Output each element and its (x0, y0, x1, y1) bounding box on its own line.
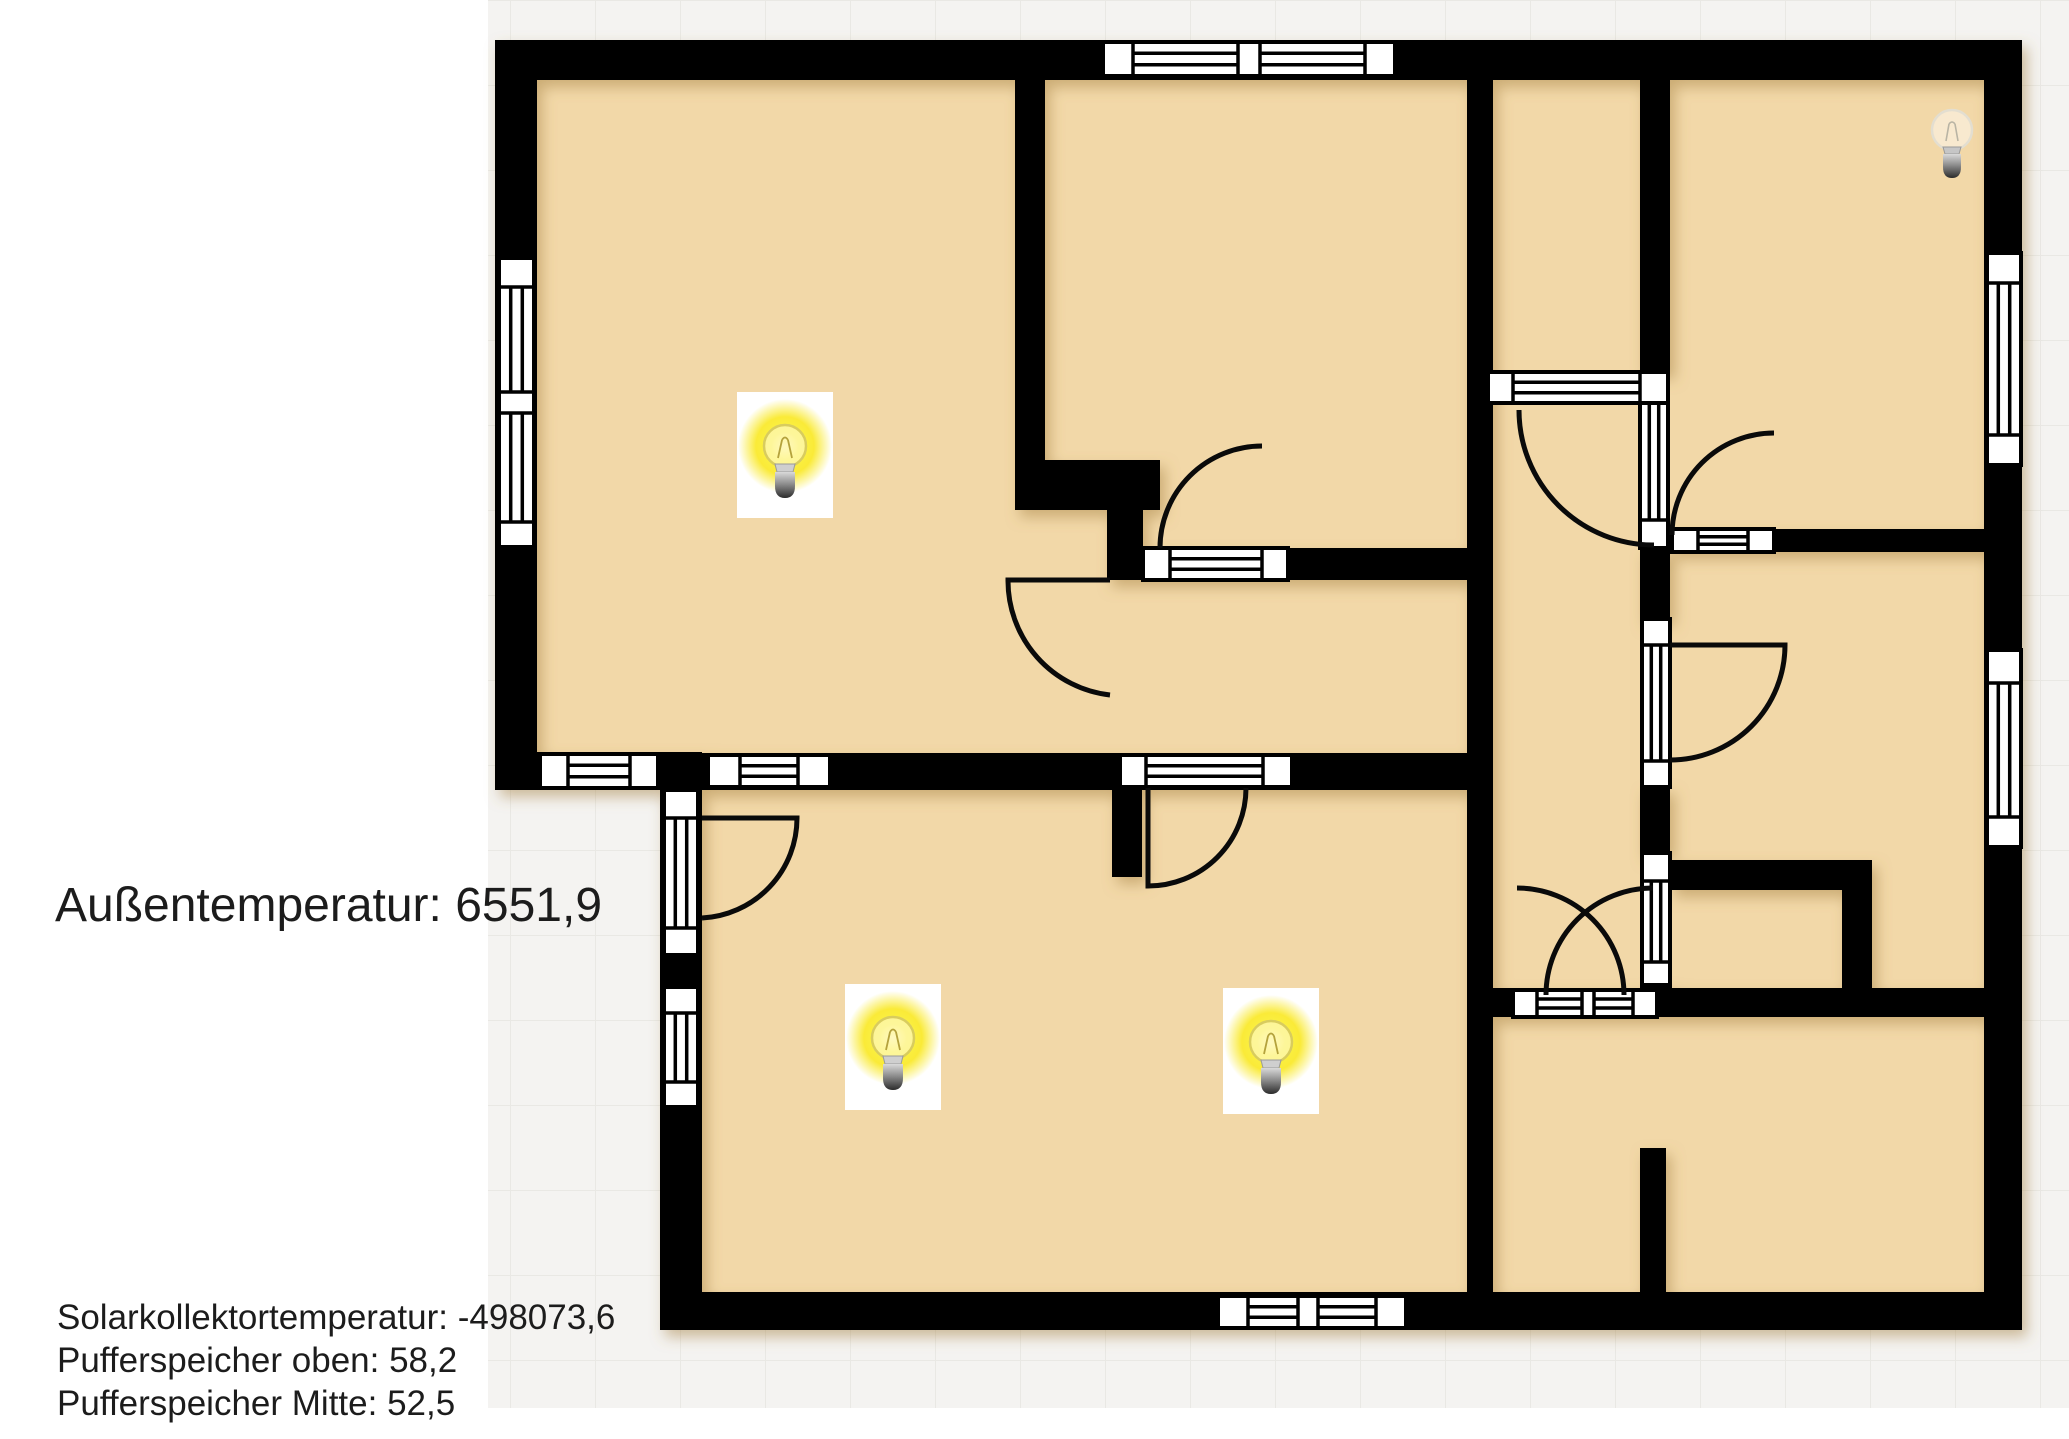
window-bottom (1218, 1296, 1406, 1328)
light-bottom-left-room[interactable] (845, 984, 941, 1110)
reading-label: Pufferspeicher oben (57, 1341, 389, 1380)
room-floor (495, 40, 2022, 1330)
window-hall-west (708, 755, 830, 787)
window-left-lower (664, 987, 698, 1107)
double-door-bottom-right (1513, 990, 1657, 1017)
light-bottom-middle-room[interactable] (1223, 988, 1319, 1114)
door-top-middle-room (1143, 548, 1288, 580)
door-top-right-room (1672, 529, 1774, 552)
door-hallway-east (1642, 619, 1670, 787)
door-entry (664, 790, 698, 955)
window-step (540, 754, 658, 788)
door-corridor (1488, 372, 1668, 403)
buffer-top-reading: Pufferspeicher oben58,2 (57, 1339, 615, 1382)
light-top-left-room[interactable] (737, 392, 833, 518)
heating-readings-block: Solarkollektortemperatur-498073,6 Puffer… (57, 1296, 615, 1425)
bulb-on-icon (845, 984, 941, 1110)
reading-label: Pufferspeicher Mitte (57, 1384, 387, 1423)
window-top (1103, 42, 1395, 76)
window-right-upper (1987, 253, 2021, 465)
reading-value: 52,5 (387, 1384, 455, 1423)
reading-label: Außentemperatur (55, 879, 455, 932)
solar-collector-reading: Solarkollektortemperatur-498073,6 (57, 1296, 615, 1339)
door-hallway-north (1640, 403, 1668, 548)
floorplan-svg (0, 0, 2069, 1439)
window-right-lower (1987, 650, 2021, 847)
window-left-upper (499, 258, 534, 547)
bulb-on-icon (737, 392, 833, 518)
outdoor-temperature-reading: Außentemperatur6551,9 (55, 878, 602, 933)
reading-value: -498073,6 (458, 1298, 616, 1337)
bulb-on-icon (1223, 988, 1319, 1114)
reading-value: 6551,9 (455, 879, 602, 932)
reading-label: Solarkollektortemperatur (57, 1298, 458, 1337)
floorplan-screen: Außentemperatur6551,9 Solarkollektortemp… (0, 0, 2069, 1439)
reading-value: 58,2 (389, 1341, 457, 1380)
buffer-middle-reading: Pufferspeicher Mitte52,5 (57, 1382, 615, 1425)
door-small-room (1642, 853, 1670, 985)
door-hall-south (1120, 755, 1292, 787)
